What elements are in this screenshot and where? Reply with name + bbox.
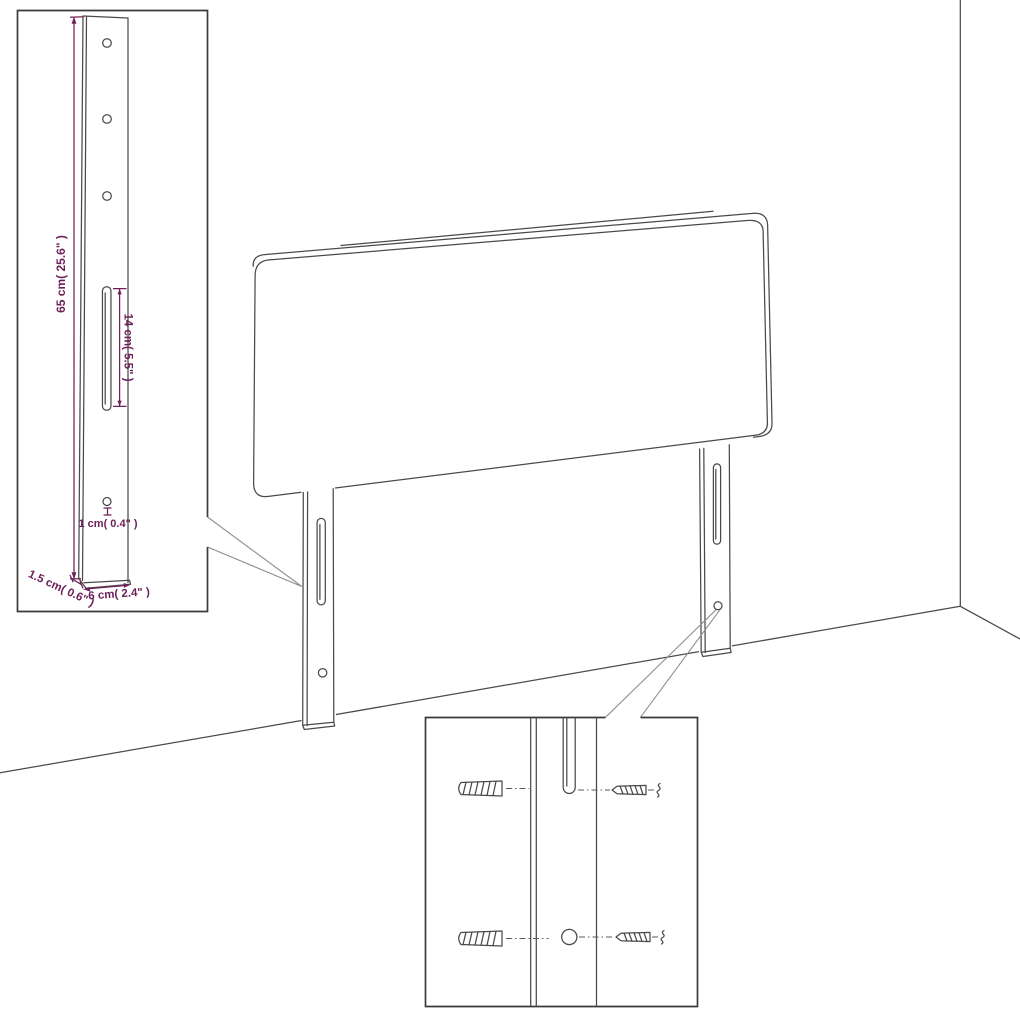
slot-dimension-arrow-bottom <box>118 401 122 407</box>
screw-detail-inset <box>426 718 698 1007</box>
right-mounting-leg <box>698 444 732 658</box>
screw-lower-head-squiggle <box>661 931 664 945</box>
leg-detail-drawing <box>79 16 131 588</box>
headboard-face <box>254 220 768 496</box>
diagram-canvas: 65 cm( 25.6" ) 14 cm( 5.5" ) 1 cm( 0.4" … <box>0 0 1020 1020</box>
screw-lower-threads <box>624 933 647 942</box>
detail-slot <box>102 287 111 411</box>
alignment-leader-lines <box>506 789 614 939</box>
right-leg-mask <box>698 444 732 658</box>
detail-leg-outline <box>79 16 128 583</box>
leg-strip-slot <box>563 718 575 794</box>
headboard-panel <box>253 211 772 496</box>
screw-upper-head-squiggle <box>657 784 660 798</box>
leg-detail-callout-wedge <box>208 517 302 587</box>
slot-dimension-arrow-top <box>118 289 122 295</box>
hole-dimension-label: 1 cm( 0.4" ) <box>79 518 138 530</box>
left-mounting-leg <box>302 487 337 730</box>
detail-hole-middle <box>103 115 112 124</box>
headboard-assembly-diagram: 65 cm( 25.6" ) 14 cm( 5.5" ) 1 cm( 0.4" … <box>0 0 1020 1020</box>
detail-hole-third <box>103 192 112 201</box>
wall-plug-upper-ribs <box>463 781 496 795</box>
screw-lower-icon <box>616 931 664 945</box>
width-dimension-label: 6 cm( 2.4" ) <box>88 586 151 602</box>
callout-lines <box>208 517 720 717</box>
detail-leg-strip <box>531 718 597 1006</box>
leg-detail-dimensions: 65 cm( 25.6" ) 14 cm( 5.5" ) 1 cm( 0.4" … <box>26 17 150 610</box>
detail-hole-bottom <box>103 498 111 506</box>
height-dimension-label: 65 cm( 25.6" ) <box>54 235 68 313</box>
floor-wall-edge-left-line <box>0 606 960 773</box>
leg-strip-hole <box>562 929 577 944</box>
slot-dimension-label: 14 cm( 5.5" ) <box>122 313 134 381</box>
screw-detail-inset-border <box>426 718 698 1007</box>
height-dimension-line <box>70 17 84 579</box>
wall-plug-lower-ribs <box>463 931 496 945</box>
wall-plug-upper-icon <box>459 781 502 796</box>
detail-hole-top <box>103 39 112 48</box>
wall-plug-lower-icon <box>459 931 502 946</box>
leg-detail-inset: 65 cm( 25.6" ) 14 cm( 5.5" ) 1 cm( 0.4" … <box>18 11 208 612</box>
screw-upper-threads <box>620 786 643 795</box>
screw-upper-icon <box>612 784 660 798</box>
hole-dimension-bracket <box>104 508 112 515</box>
floor-wall-edge-right-line <box>960 606 1020 639</box>
